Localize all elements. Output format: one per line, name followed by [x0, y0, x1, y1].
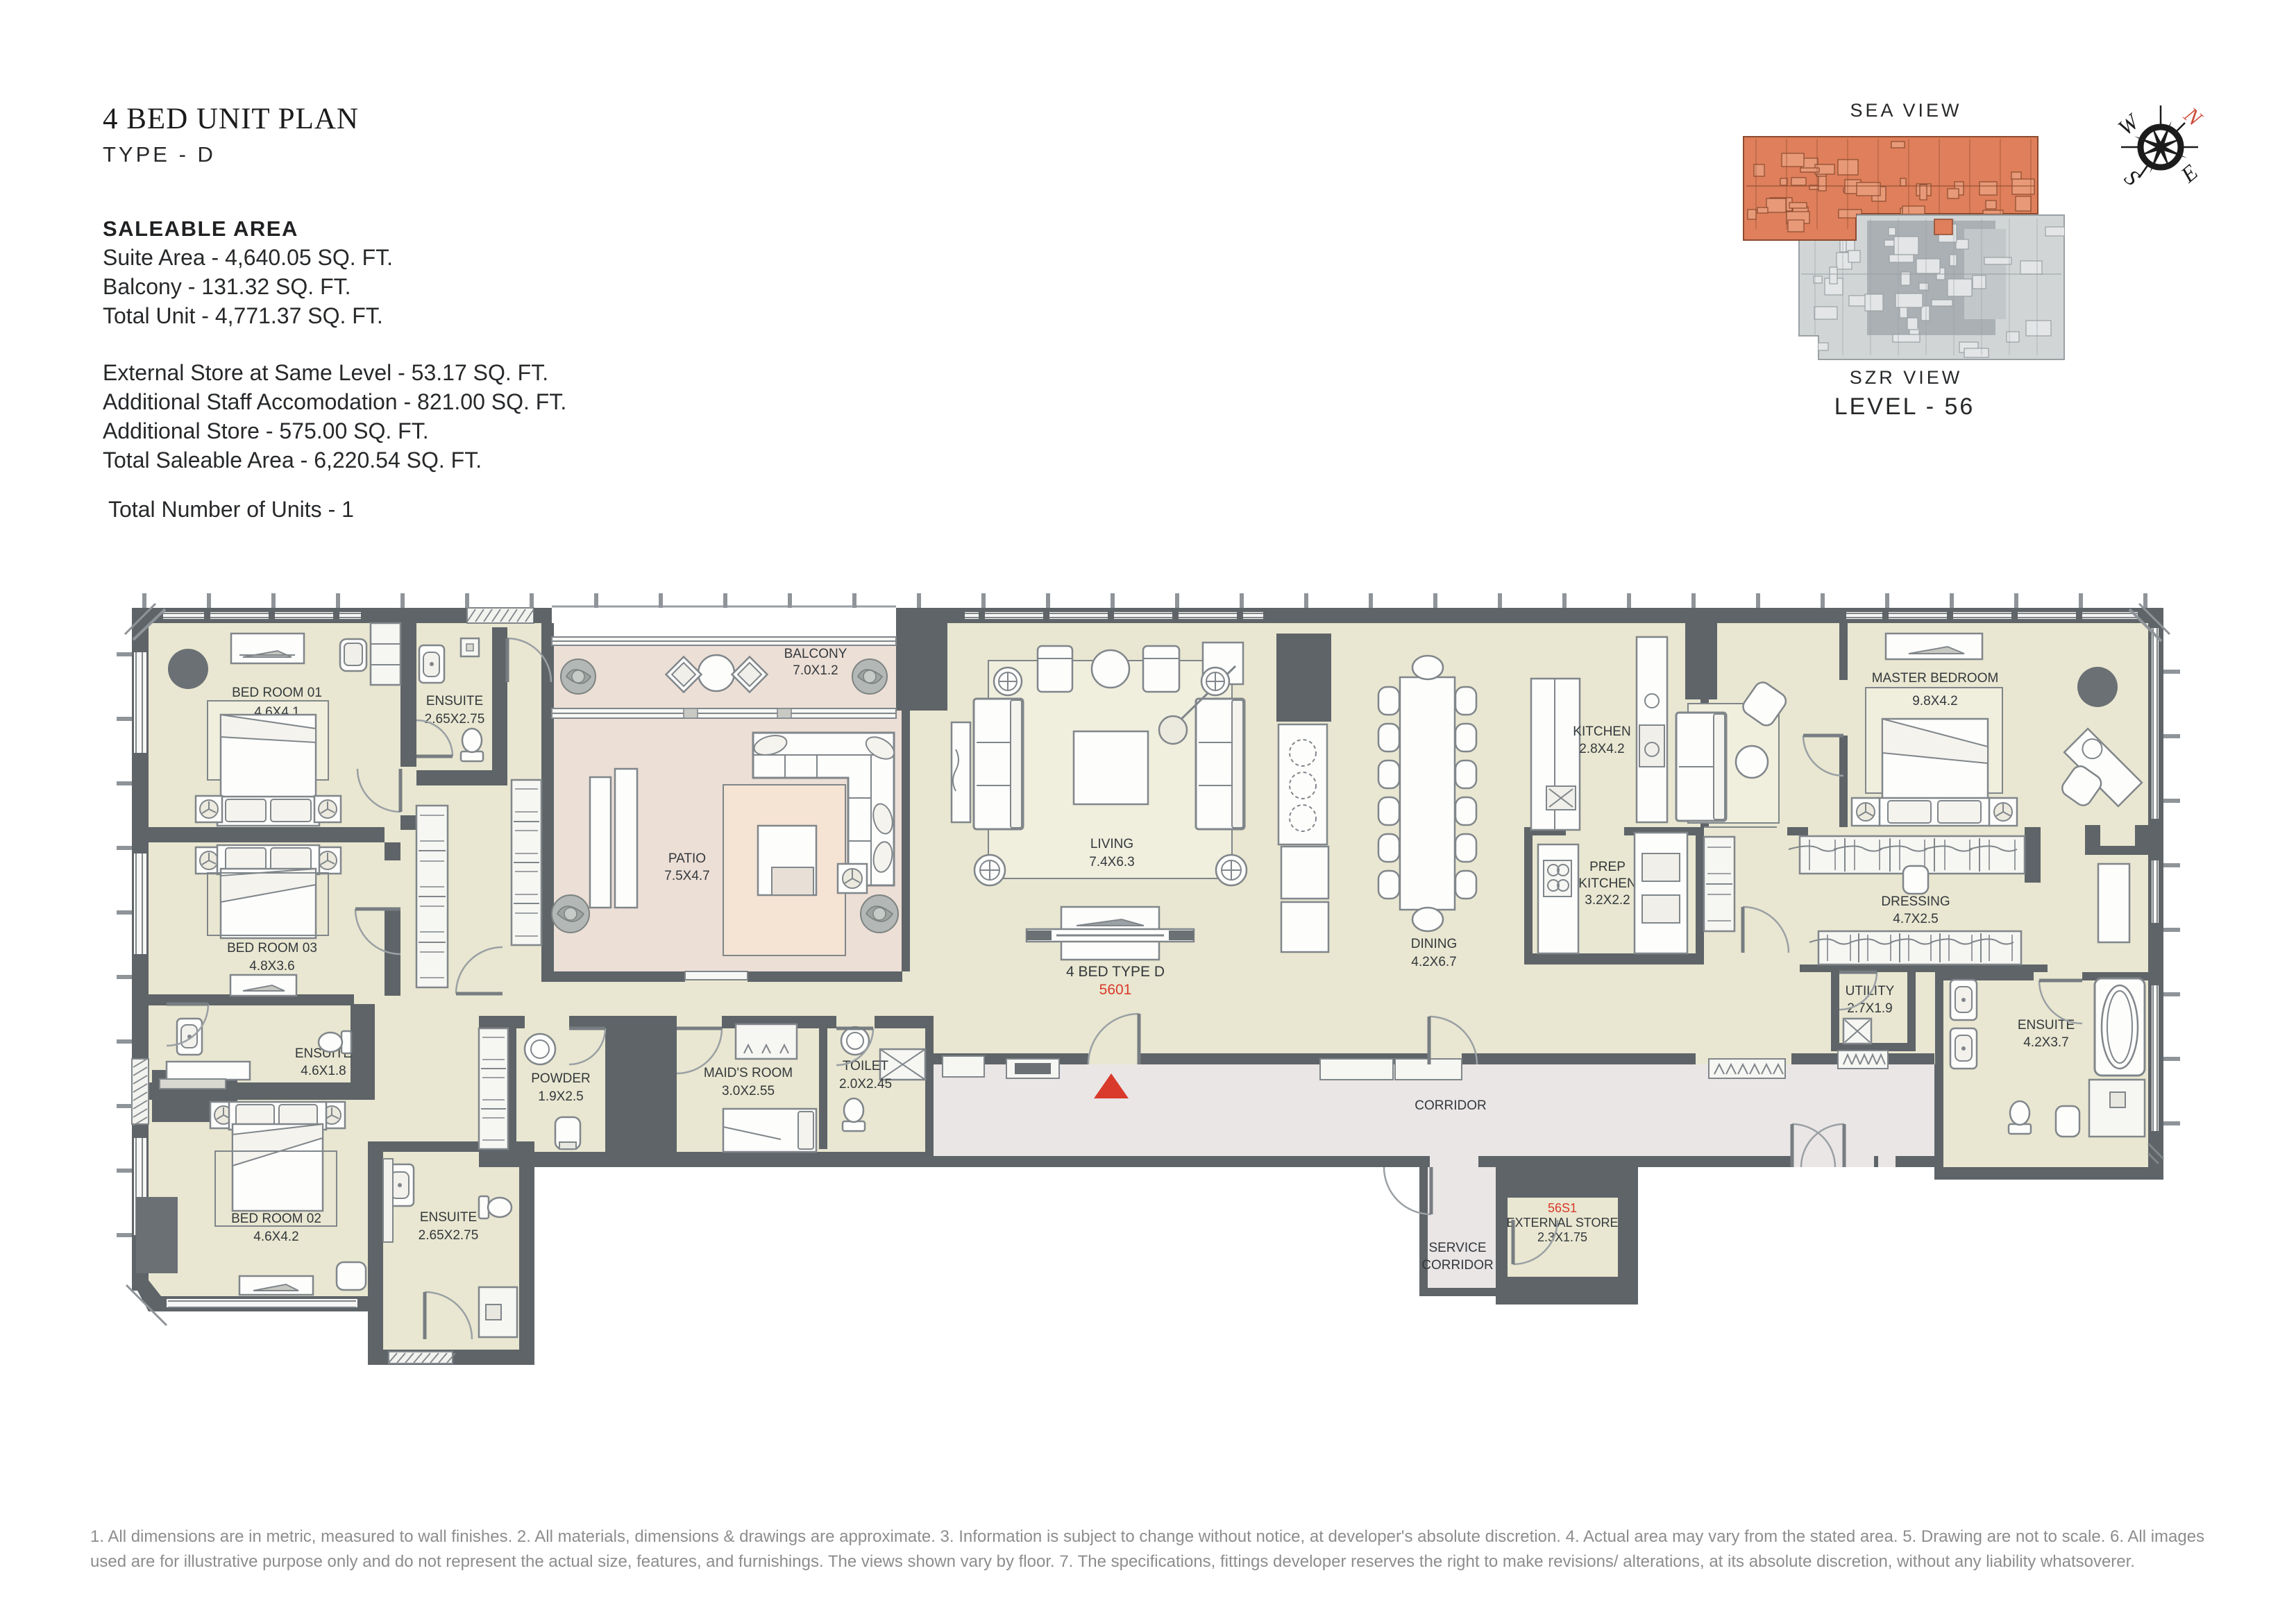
svg-text:Total Saleable Area - 6,220.54: Total Saleable Area - 6,220.54 SQ. FT.	[103, 448, 482, 473]
svg-text:BED ROOM 03: BED ROOM 03	[227, 941, 317, 955]
svg-text:2.65X2.75: 2.65X2.75	[419, 1228, 479, 1243]
svg-text:MAID'S ROOM: MAID'S ROOM	[704, 1066, 793, 1080]
svg-text:7.0X1.2: 7.0X1.2	[793, 663, 838, 678]
svg-text:3.0X2.55: 3.0X2.55	[722, 1084, 775, 1098]
svg-text:BED ROOM 01: BED ROOM 01	[232, 686, 322, 700]
svg-text:4.8X3.6: 4.8X3.6	[249, 959, 295, 974]
svg-text:4 BED TYPE D: 4 BED TYPE D	[1066, 964, 1165, 980]
svg-text:Additional Store - 575.00 SQ.: Additional Store - 575.00 SQ. FT.	[103, 418, 429, 443]
svg-text:7.5X4.7: 7.5X4.7	[664, 869, 710, 883]
svg-text:4.2X6.7: 4.2X6.7	[1411, 955, 1457, 969]
svg-text:CORRIDOR: CORRIDOR	[1421, 1258, 1493, 1273]
svg-text:2.8X4.2: 2.8X4.2	[1579, 742, 1625, 756]
svg-text:Total Number of Units - 1: Total Number of Units - 1	[108, 497, 354, 522]
svg-text:CORRIDOR: CORRIDOR	[1415, 1098, 1486, 1113]
svg-text:SERVICE: SERVICE	[1428, 1241, 1486, 1255]
svg-text:used are for illustrative purp: used are for illustrative purpose only a…	[90, 1552, 2135, 1571]
svg-text:External Store at Same Level -: External Store at Same Level - 53.17 SQ.…	[103, 360, 548, 385]
svg-text:1. All dimensions are in metri: 1. All dimensions are in metric, measure…	[90, 1527, 2204, 1546]
svg-text:DINING: DINING	[1411, 937, 1458, 951]
svg-text:BED ROOM 02: BED ROOM 02	[231, 1212, 321, 1226]
svg-text:KITCHEN: KITCHEN	[1578, 876, 1636, 891]
svg-text:POWDER: POWDER	[531, 1071, 591, 1086]
svg-text:LEVEL - 56: LEVEL - 56	[1834, 393, 1975, 420]
svg-text:5601: 5601	[1099, 982, 1132, 998]
svg-text:UTILITY: UTILITY	[1846, 984, 1895, 999]
svg-text:Balcony - 131.32 SQ. FT.: Balcony - 131.32 SQ. FT.	[103, 274, 351, 299]
svg-text:SEA VIEW: SEA VIEW	[1850, 100, 1961, 121]
svg-text:4 BED UNIT PLAN: 4 BED UNIT PLAN	[103, 103, 359, 135]
svg-text:Additional Staff Accomodation: Additional Staff Accomodation - 821.00 S…	[103, 389, 566, 414]
svg-text:KITCHEN: KITCHEN	[1573, 724, 1630, 739]
svg-text:2.7X1.9: 2.7X1.9	[1847, 1001, 1893, 1016]
svg-text:BALCONY: BALCONY	[784, 647, 847, 661]
svg-text:4.2X3.7: 4.2X3.7	[2023, 1035, 2069, 1050]
svg-text:LIVING: LIVING	[1090, 837, 1133, 851]
svg-text:4.7X2.5: 4.7X2.5	[1893, 912, 1939, 926]
svg-text:EXTERNAL STORE: EXTERNAL STORE	[1506, 1216, 1618, 1230]
svg-text:PATIO: PATIO	[668, 851, 706, 866]
svg-text:PREP: PREP	[1589, 860, 1626, 874]
svg-text:Suite Area - 4,640.05 SQ. FT.: Suite Area - 4,640.05 SQ. FT.	[103, 245, 393, 270]
svg-text:9.8X4.2: 9.8X4.2	[1912, 694, 1958, 708]
svg-text:ENSUITE: ENSUITE	[426, 694, 483, 708]
svg-text:2.0X2.45: 2.0X2.45	[839, 1077, 892, 1091]
svg-text:2.3X1.75: 2.3X1.75	[1537, 1230, 1587, 1244]
svg-text:4.6X1.8: 4.6X1.8	[301, 1064, 346, 1078]
svg-text:SALEABLE AREA: SALEABLE AREA	[103, 216, 298, 241]
svg-text:SZR VIEW: SZR VIEW	[1850, 367, 1963, 388]
svg-text:MASTER BEDROOM: MASTER BEDROOM	[1872, 671, 1999, 686]
svg-text:1.9X2.5: 1.9X2.5	[538, 1089, 584, 1104]
svg-text:7.4X6.3: 7.4X6.3	[1089, 855, 1135, 869]
svg-text:56S1: 56S1	[1548, 1201, 1577, 1215]
svg-text:3.2X2.2: 3.2X2.2	[1585, 893, 1630, 908]
svg-text:DRESSING: DRESSING	[1881, 894, 1950, 909]
svg-text:4.6X4.2: 4.6X4.2	[253, 1230, 299, 1244]
svg-text:Total Unit - 4,771.37 SQ. FT.: Total Unit - 4,771.37 SQ. FT.	[103, 303, 383, 328]
svg-text:TOILET: TOILET	[843, 1059, 889, 1073]
svg-text:ENSUITE: ENSUITE	[420, 1210, 477, 1225]
svg-text:TYPE - D: TYPE - D	[103, 142, 216, 167]
